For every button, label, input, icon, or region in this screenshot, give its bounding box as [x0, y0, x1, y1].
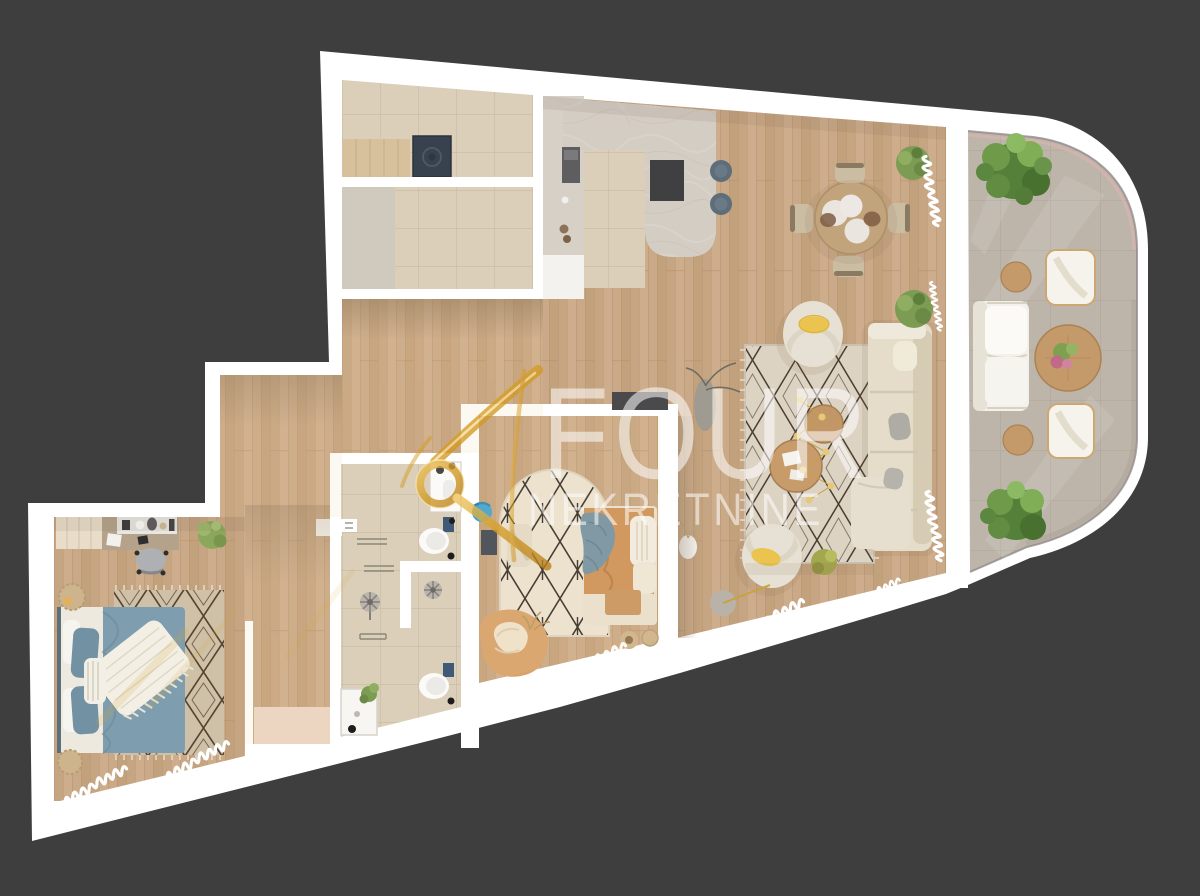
svg-text:NEKRETNINE: NEKRETNINE	[528, 484, 824, 535]
